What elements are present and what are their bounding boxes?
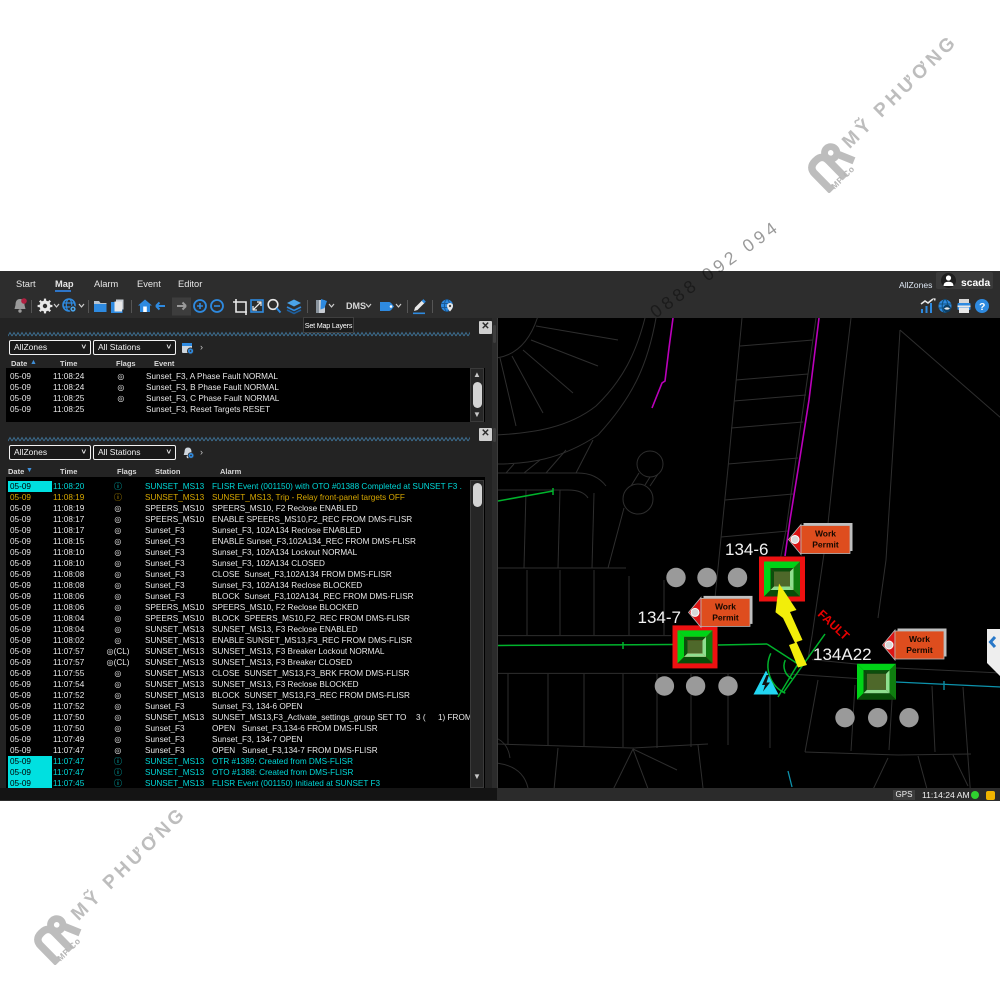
svg-text:DMS: DMS [346, 301, 366, 311]
svg-text:134-7: 134-7 [638, 608, 681, 627]
svg-text:?: ? [979, 301, 985, 313]
svg-text:134A22: 134A22 [813, 645, 872, 664]
svg-text:FAULT: FAULT [815, 607, 853, 643]
svg-text:Work: Work [815, 529, 836, 539]
svg-text:Permit: Permit [812, 540, 839, 550]
svg-text:Work: Work [715, 601, 736, 611]
svg-text:Work: Work [909, 634, 930, 644]
svg-text:Permit: Permit [712, 612, 739, 622]
svg-text:Permit: Permit [906, 645, 933, 655]
svg-text:134-6: 134-6 [725, 540, 768, 559]
